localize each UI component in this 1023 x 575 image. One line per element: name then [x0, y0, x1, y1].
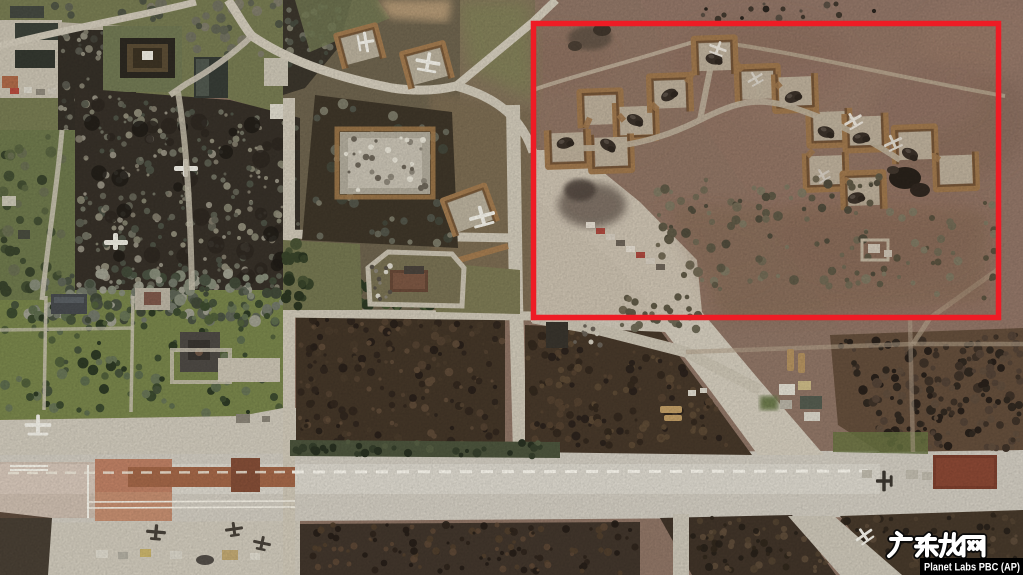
svg-text:Planet Labs PBC (AP): Planet Labs PBC (AP) — [924, 562, 1020, 574]
